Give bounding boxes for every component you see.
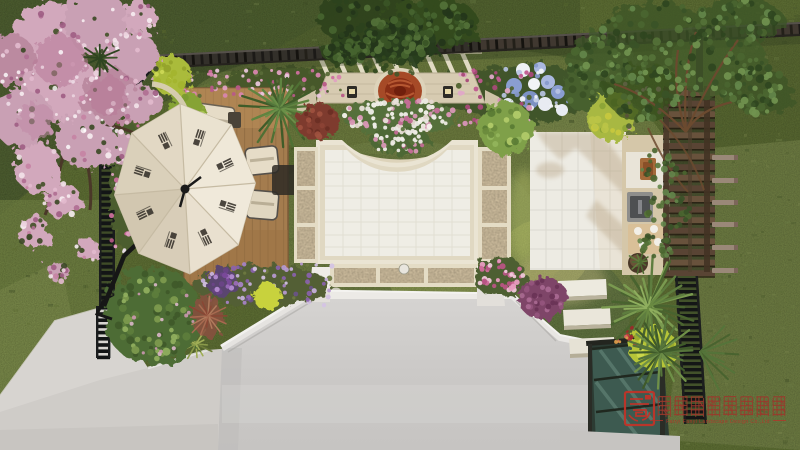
svg-text:Fanyi Fanyi Landscape Desig: Fanyi Fanyi Landscape Design Co.,Ltd: [666, 419, 770, 425]
